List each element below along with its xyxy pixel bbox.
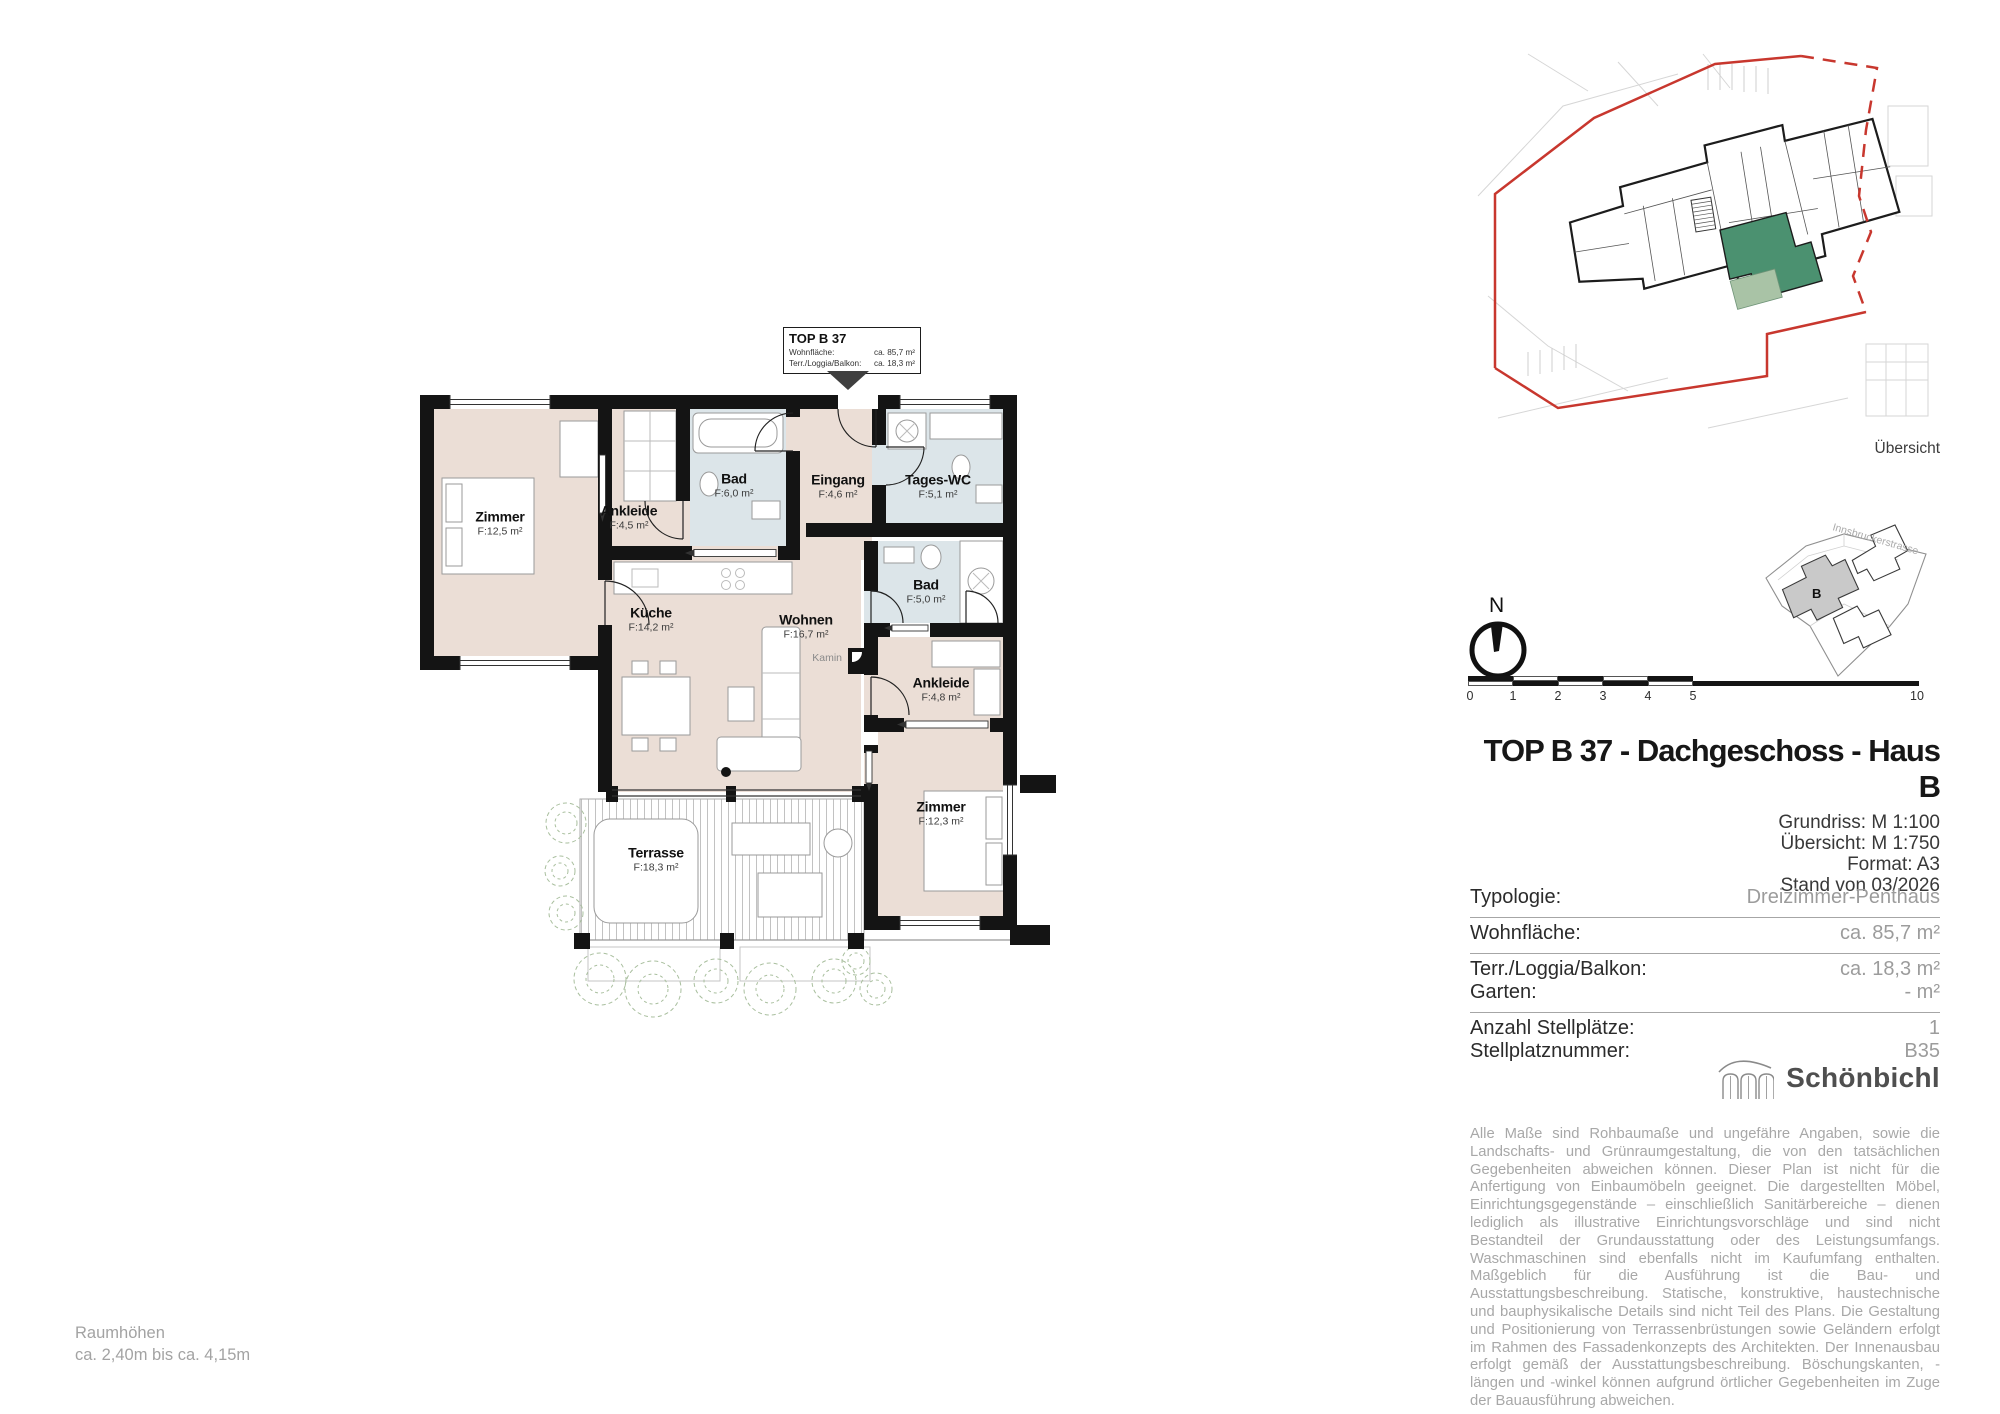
scale-segment (1648, 681, 1693, 686)
room-heights-title: Raumhöhen (75, 1322, 250, 1344)
site-location-diagram: B Innsbruckerstrasse (1748, 508, 1948, 683)
scale-tick: 4 (1645, 689, 1652, 703)
scale-segment (1468, 681, 1513, 686)
detail-uebersicht: Übersicht: M 1:750 (1470, 833, 1940, 854)
scale-segment (1693, 681, 1919, 686)
brand-name: Schönbichl (1786, 1062, 1940, 1094)
detail-format: Format: A3 (1470, 854, 1940, 875)
facts-group: Terr./Loggia/Balkon: ca. 18,3 m² Garten:… (1470, 954, 1940, 1013)
unit-callout: TOP B 37 Wohnfläche: ca. 85,7 m² Terr./L… (783, 327, 921, 374)
scale-segment (1513, 681, 1558, 686)
kamin-label: Kamin (790, 652, 842, 664)
scale-tick: 2 (1555, 689, 1562, 703)
table-row: Garten: - m² (1470, 981, 1940, 1004)
callout-row: Wohnfläche: ca. 85,7 m² (789, 348, 915, 359)
scale-tick: 3 (1600, 689, 1607, 703)
facts-group: Typologie: Dreizimmer-Penthaus (1470, 882, 1940, 918)
compass-needle-icon (1491, 623, 1503, 652)
callout-pointer-icon (827, 371, 869, 390)
scale-tick: 1 (1510, 689, 1517, 703)
scale-tick: 0 (1467, 689, 1474, 703)
north-compass: N (1462, 588, 1542, 680)
scale-tick: 10 (1910, 689, 1924, 703)
scale-tick: 5 (1690, 689, 1697, 703)
table-row: Wohnfläche: ca. 85,7 m² (1470, 922, 1940, 945)
building-b-label: B (1812, 586, 1821, 601)
floorplan-sheet: Zimmer F:12,5 m² Ankleide F:4,5 m² Bad F… (0, 0, 2000, 1414)
scale-bar: 0 1 2 3 4 5 10 (1468, 676, 1940, 710)
site-overview-map (1468, 46, 1940, 438)
overview-caption: Übersicht (1670, 440, 1940, 458)
floor-plan-drawing (410, 385, 1070, 1065)
callout-row: Terr./Loggia/Balkon: ca. 18,3 m² (789, 359, 915, 370)
callout-title: TOP B 37 (789, 331, 915, 346)
facts-group: Wohnfläche: ca. 85,7 m² (1470, 918, 1940, 954)
table-row: Anzahl Stellplätze: 1 (1470, 1017, 1940, 1040)
scale-segment (1603, 681, 1648, 686)
disclaimer-text: Alle Maße sind Rohbaumaße und ungefähre … (1470, 1126, 1940, 1411)
north-label: N (1489, 594, 1504, 617)
brand-logo: Schönbichl (1470, 1055, 1940, 1101)
room-heights-note: Raumhöhen ca. 2,40m bis ca. 4,15m (75, 1322, 250, 1366)
detail-grundriss: Grundriss: M 1:100 (1470, 812, 1940, 833)
table-row: Typologie: Dreizimmer-Penthaus (1470, 886, 1940, 909)
title-block: TOP B 37 - Dachgeschoss - Haus B Grundri… (1470, 733, 1940, 896)
scale-segment (1558, 681, 1603, 686)
room-heights-value: ca. 2,40m bis ca. 4,15m (75, 1344, 250, 1366)
facts-table: Typologie: Dreizimmer-Penthaus Wohnfläch… (1470, 882, 1940, 1071)
table-row: Terr./Loggia/Balkon: ca. 18,3 m² (1470, 958, 1940, 981)
schoenbichl-house-icon (1716, 1055, 1774, 1101)
sheet-title: TOP B 37 - Dachgeschoss - Haus B (1470, 733, 1940, 805)
